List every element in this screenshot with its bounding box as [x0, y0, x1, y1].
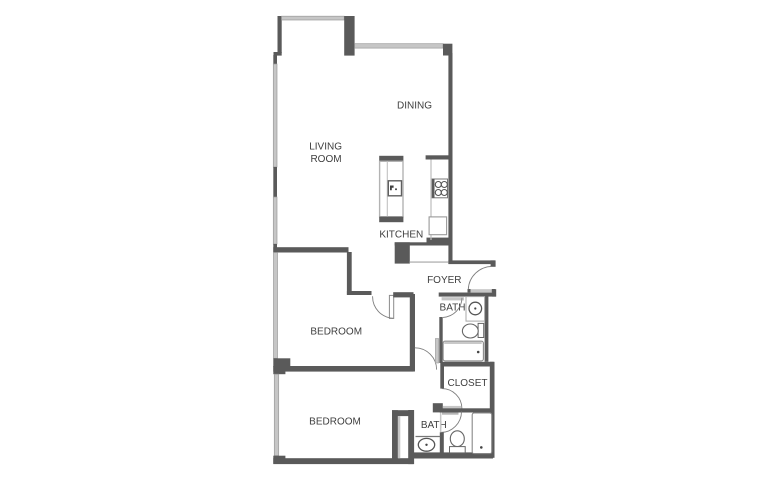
svg-text:LIVING: LIVING [309, 141, 342, 152]
svg-text:DINING: DINING [397, 100, 432, 111]
svg-text:BEDROOM: BEDROOM [309, 416, 361, 427]
svg-text:BEDROOM: BEDROOM [310, 327, 362, 338]
svg-text:KITCHEN: KITCHEN [379, 229, 423, 240]
svg-text:CLOSET: CLOSET [447, 378, 487, 389]
svg-text:BATH: BATH [440, 302, 466, 313]
svg-text:FOYER: FOYER [427, 275, 461, 286]
svg-text:ROOM: ROOM [310, 154, 341, 165]
svg-text:BATH: BATH [421, 420, 447, 431]
